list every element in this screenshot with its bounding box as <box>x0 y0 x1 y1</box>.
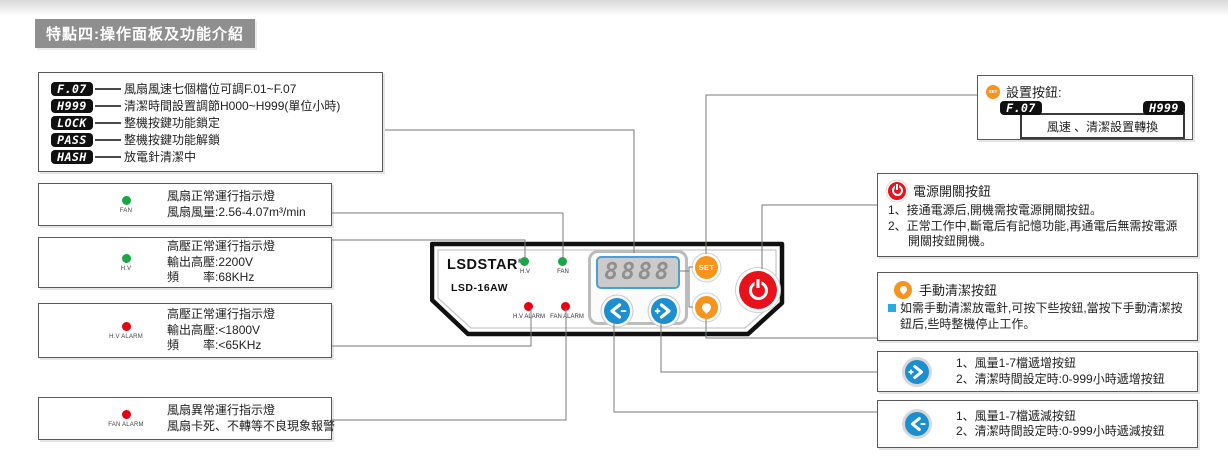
decrement-icon-col <box>878 412 956 436</box>
seven-segment-display: 8888 <box>596 256 680 289</box>
fan-led <box>558 257 567 266</box>
hv-alarm-led <box>524 302 533 311</box>
code-badge: H999 <box>51 99 93 113</box>
set-button[interactable]: SET <box>695 256 718 279</box>
clean-info-title-row: 手動清潔按鈕 <box>888 280 1187 299</box>
display-cluster: 8888 <box>588 250 688 325</box>
brush-icon <box>700 301 713 314</box>
set-info-box: SET 設置按鈕: F.07 H999 風速 、清潔設置轉換 <box>977 75 1193 140</box>
dash-line <box>95 156 121 158</box>
increment-icon-col <box>878 360 956 384</box>
code-row-h999: H999 清潔時間設置調節H000~H999(單位小時) <box>51 97 374 114</box>
brush-mini-icon <box>894 281 912 299</box>
brand-logo: LSDSTAR® <box>447 257 523 273</box>
green-led-icon <box>122 254 131 263</box>
fan-led-legend: FAN <box>39 196 167 214</box>
blue-square-bullet <box>888 304 896 312</box>
code-badge: HASH <box>51 150 93 164</box>
hv-alarm-led-legend: H.V ALARM <box>39 322 167 340</box>
set-toggle-caption: 風速 、清潔設置轉換 <box>1020 113 1185 139</box>
decrement-button[interactable] <box>604 298 630 324</box>
fan-indicator-box: FAN 風扇正常運行指示燈 風扇風量:2.56-4.07m³/min <box>38 183 332 226</box>
hv-indicator-box: H.V 高壓正常運行指示燈 輸出高壓:2200V 頻 率:68KHz <box>38 237 332 288</box>
increment-button[interactable] <box>651 298 677 324</box>
green-led-icon <box>122 196 131 205</box>
control-panel: LSDSTAR® LSD-16AW H.V FAN H.V ALARM FAN … <box>430 241 786 337</box>
decrement-info-text: 1、風量1-7檔遞減按鈕 2、清潔時間設定時:0-999小時遞減按鈕 <box>956 409 1165 440</box>
power-info-box: 電源開關按鈕 1、接通電源后,開機需按電源開關按鈕。 2、正常工作中,斷電后有記… <box>877 173 1198 257</box>
model-number: LSD-16AW <box>451 282 508 294</box>
fan-indicator-text: 風扇正常運行指示燈 風扇風量:2.56-4.07m³/min <box>167 189 306 220</box>
code-row-pass: PASS 整機按鍵功能解鎖 <box>51 131 374 148</box>
fan-alarm-led-legend: FAN ALARM <box>39 410 167 428</box>
manual-clean-button[interactable] <box>695 296 718 319</box>
red-led-icon <box>122 322 131 331</box>
power-button[interactable] <box>739 271 777 309</box>
decrement-info-box: 1、風量1-7檔遞減按鈕 2、清潔時間設定時:0-999小時遞減按鈕 <box>877 400 1198 448</box>
hv-led-legend: H.V <box>39 254 167 272</box>
code-badge: F.07 <box>51 82 93 96</box>
code-badge-clean-time: H999 <box>1143 101 1185 115</box>
set-mini-icon: SET <box>986 85 1000 99</box>
hv-alarm-text: 高壓正常運行指示燈 輸出高壓:<1800V 頻 率:<65KHz <box>167 307 275 354</box>
red-led-icon <box>122 410 131 419</box>
hv-indicator-text: 高壓正常運行指示燈 輸出高壓:2200V 頻 率:68KHz <box>167 239 275 286</box>
increment-info-text: 1、風量1-7檔遞增按鈕 2、清潔時間設定時:0-999小時遞增按鈕 <box>956 356 1165 387</box>
page: 特點四:操作面板及功能介紹 F.07 風扇風速七個檔位可調F.01~F.07 H… <box>0 0 1228 470</box>
fan-alarm-led <box>561 302 570 311</box>
code-row-f07: F.07 風扇風速七個檔位可調F.01~F.07 <box>51 80 374 97</box>
power-info-title-row: 電源開關按鈕 <box>888 181 1187 200</box>
dash-line <box>95 122 121 124</box>
code-badge-fan-speed: F.07 <box>1000 101 1042 115</box>
power-mini-icon <box>888 182 906 200</box>
dash-line <box>95 139 121 141</box>
top-gradient <box>0 0 1228 16</box>
clean-info-box: 手動清潔按鈕 如需手動清潔放電針,可按下些按鈕,當按下手動清潔按鈕后,些時整機停… <box>877 272 1198 341</box>
code-badge: PASS <box>51 133 93 147</box>
chevron-right-plus-icon <box>905 360 929 384</box>
fan-alarm-text: 風扇異常運行指示燈 風扇卡死、不轉等不良現象報警 <box>167 403 335 434</box>
code-row-lock: LOCK 整機按鍵功能鎖定 <box>51 114 374 131</box>
dash-line <box>95 88 121 90</box>
set-info-title-row: SET 設置按鈕: <box>986 82 1062 101</box>
power-icon <box>749 281 768 300</box>
fan-alarm-box: FAN ALARM 風扇異常運行指示燈 風扇卡死、不轉等不良現象報警 <box>38 397 332 440</box>
dash-line <box>95 105 121 107</box>
display-codes-box: F.07 風扇風速七個檔位可調F.01~F.07 H999 清潔時間設置調節H0… <box>38 72 383 172</box>
chevron-left-minus-icon <box>905 412 929 436</box>
hv-led <box>520 257 529 266</box>
chevron-right-plus-icon <box>651 298 677 324</box>
hv-alarm-box: H.V ALARM 高壓正常運行指示燈 輸出高壓:<1800V 頻 率:<65K… <box>38 303 332 358</box>
increment-info-box: 1、風量1-7檔遞增按鈕 2、清潔時間設定時:0-999小時遞增按鈕 <box>877 351 1198 392</box>
page-title: 特點四:操作面板及功能介紹 <box>35 19 255 48</box>
code-badge: LOCK <box>51 116 93 130</box>
code-row-hash: HASH 放電針清潔中 <box>51 148 374 165</box>
clean-info-text: 如需手動清潔放電針,可按下些按鈕,當按下手動清潔按鈕后,些時整機停止工作。 <box>888 301 1187 332</box>
chevron-left-minus-icon <box>604 298 630 324</box>
